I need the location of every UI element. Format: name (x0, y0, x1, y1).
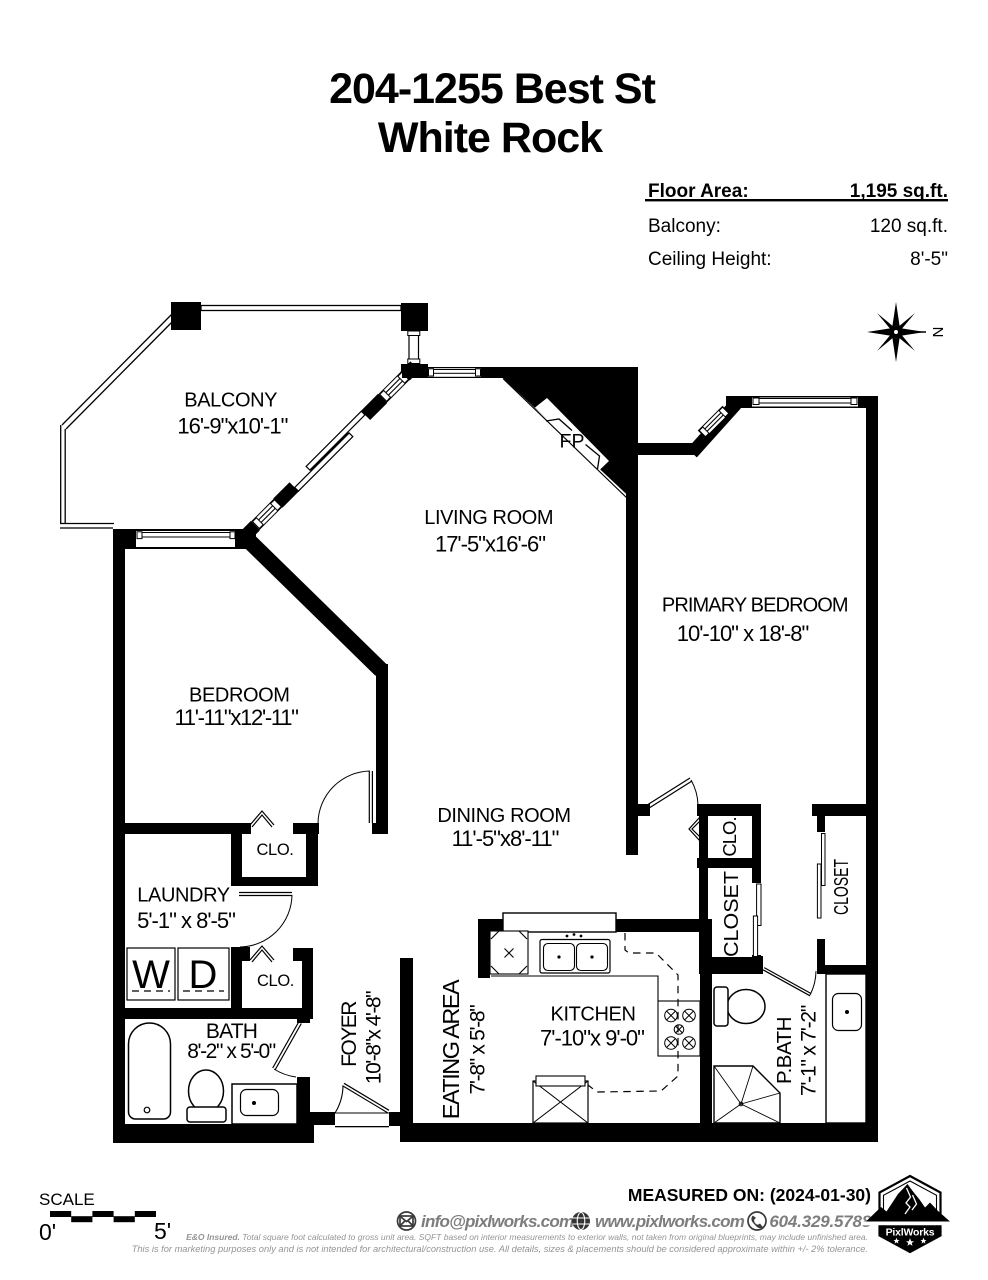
svg-text:E&O Insured. Total square foo: E&O Insured. Total square foot calculate… (186, 1232, 868, 1242)
svg-text:PRIMARY BEDROOM: PRIMARY BEDROOM (662, 595, 848, 617)
svg-text:D: D (189, 953, 218, 997)
svg-text:P.BATH: P.BATH (773, 1017, 796, 1084)
svg-text:W: W (132, 953, 170, 997)
svg-text:BEDROOM: BEDROOM (189, 685, 290, 707)
svg-text:5': 5' (154, 1218, 171, 1244)
svg-text:CLO.: CLO. (257, 972, 294, 990)
svg-text:PixlWorks: PixlWorks (886, 1227, 935, 1239)
svg-text:This is for marketing purposes: This is for marketing purposes only and … (132, 1244, 868, 1254)
svg-text:Ceiling Height:: Ceiling Height: (648, 249, 772, 270)
svg-text:BALCONY: BALCONY (184, 390, 277, 412)
svg-text:LIVING ROOM: LIVING ROOM (424, 507, 553, 529)
svg-text:11'-11"x12'-11": 11'-11"x12'-11" (175, 705, 299, 730)
svg-text:CLO.: CLO. (719, 817, 740, 856)
svg-text:7'-1" x 7'-2": 7'-1" x 7'-2" (798, 1005, 821, 1096)
svg-text:604.329.5788: 604.329.5788 (769, 1212, 871, 1231)
svg-text:FOYER: FOYER (338, 1001, 361, 1067)
svg-text:www.pixlworks.com: www.pixlworks.com (595, 1212, 745, 1231)
svg-text:KITCHEN: KITCHEN (551, 1004, 636, 1026)
svg-text:Balcony:: Balcony: (648, 216, 721, 237)
svg-text:5'-1" x 8'-5": 5'-1" x 8'-5" (137, 908, 235, 933)
svg-text:1,195 sq.ft.: 1,195 sq.ft. (850, 181, 948, 202)
svg-text:16'-9"x10'-1": 16'-9"x10'-1" (177, 414, 287, 439)
svg-text:8'-5": 8'-5" (910, 249, 948, 270)
svg-text:8'-2" x 5'-0": 8'-2" x 5'-0" (187, 1040, 276, 1063)
svg-text:120 sq.ft.: 120 sq.ft. (870, 216, 948, 237)
svg-text:EATING AREA: EATING AREA (438, 979, 464, 1119)
svg-text:11'-5"x8'-11": 11'-5"x8'-11" (452, 826, 559, 851)
svg-text:0': 0' (39, 1219, 56, 1245)
svg-text:FP: FP (560, 431, 585, 453)
svg-text:White Rock: White Rock (378, 114, 603, 162)
svg-text:LAUNDRY: LAUNDRY (137, 885, 229, 907)
svg-text:SCALE: SCALE (39, 1190, 95, 1209)
svg-text:N: N (929, 327, 946, 338)
svg-text:17'-5"x16'-6": 17'-5"x16'-6" (435, 532, 545, 557)
svg-text:DINING ROOM: DINING ROOM (437, 805, 570, 827)
svg-text:CLOSET: CLOSET (831, 859, 853, 915)
svg-text:7'-10"x 9'-0": 7'-10"x 9'-0" (540, 1026, 644, 1051)
svg-text:CLO.: CLO. (257, 841, 294, 859)
svg-text:7'-8" x 5'-8": 7'-8" x 5'-8" (467, 1005, 490, 1095)
svg-text:204-1255 Best St: 204-1255 Best St (329, 65, 655, 113)
svg-text:10'-8"x 4'-8": 10'-8"x 4'-8" (363, 991, 386, 1084)
svg-text:Floor Area:: Floor Area: (648, 181, 749, 202)
svg-text:info@pixlworks.com: info@pixlworks.com (421, 1212, 574, 1231)
svg-text:CLOSET: CLOSET (721, 871, 743, 957)
svg-text:MEASURED ON: (2024-01-30): MEASURED ON: (2024-01-30) (628, 1185, 871, 1205)
svg-text:10'-10" x 18'-8": 10'-10" x 18'-8" (677, 621, 809, 646)
